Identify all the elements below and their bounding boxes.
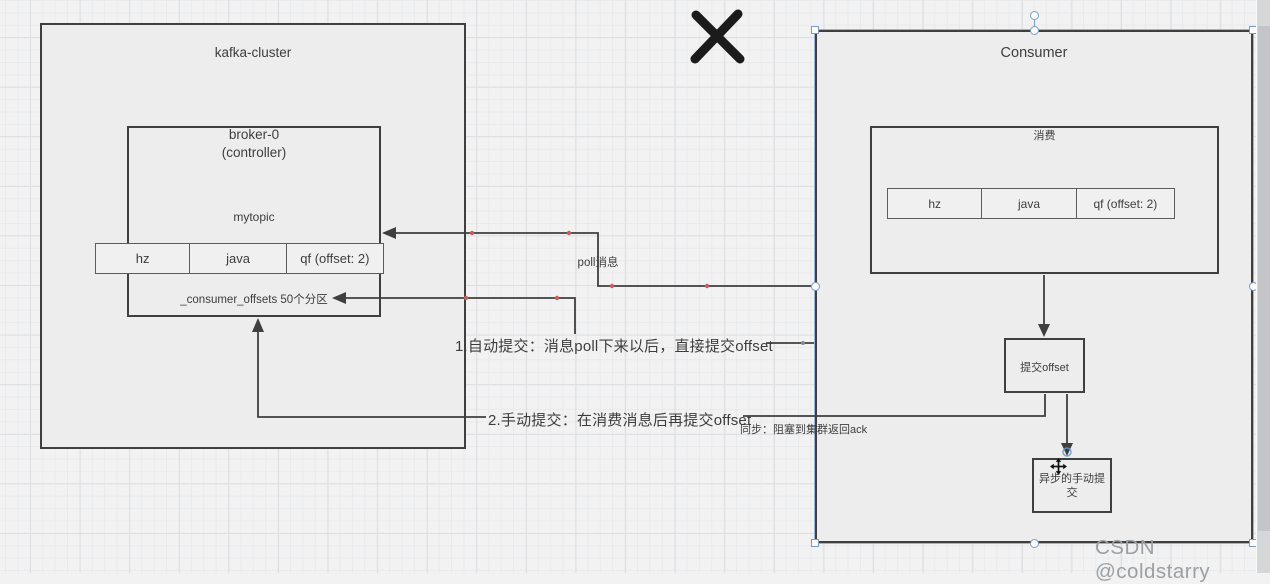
rotation-handle[interactable] (1030, 11, 1039, 20)
waypoint-dot (610, 284, 614, 288)
kafka-partition-table[interactable]: hz java qf (offset: 2) (95, 243, 384, 274)
consumer-partition-cell[interactable]: hz (888, 189, 982, 218)
endpoint-dot (801, 341, 805, 345)
commit-offset-label: 提交offset (1004, 359, 1085, 375)
watermark: CSDN @coldstarry (1095, 536, 1270, 584)
vertical-scrollbar[interactable] (1256, 0, 1270, 573)
vertical-scrollbar-thumb[interactable] (1258, 26, 1270, 531)
broker-name: broker-0 (127, 127, 381, 142)
selection-handle-bottom-middle[interactable] (1030, 539, 1039, 548)
waypoint-dot (555, 296, 559, 300)
consumer-partition-table[interactable]: hz java qf (offset: 2) (887, 188, 1175, 219)
consume-label: 消费 (870, 127, 1219, 143)
selection-handle-bottom-left[interactable] (811, 539, 819, 547)
waypoint-dot (567, 231, 571, 235)
waypoint-dot (705, 284, 709, 288)
selection-handle-middle-left[interactable] (811, 282, 820, 291)
consumer-partition-cell[interactable]: java (982, 189, 1076, 218)
diagram-canvas[interactable]: kafka-cluster Consumer broker-0 (control… (0, 0, 1270, 573)
auto-commit-annotation[interactable]: 1.自动提交：消息poll下来以后，直接提交offset (455, 335, 773, 356)
consumer-partition-cell[interactable]: qf (offset: 2) (1077, 189, 1174, 218)
kafka-cluster-title: kafka-cluster (40, 45, 466, 60)
consumer-title: Consumer (815, 45, 1253, 61)
topic-label: mytopic (127, 210, 381, 224)
sync-ack-annotation[interactable]: 同步：阻塞到集群返回ack (740, 421, 867, 437)
manual-commit-annotation[interactable]: 2.手动提交：在消费消息后再提交offset (488, 409, 751, 430)
waypoint-dot (470, 231, 474, 235)
broker-role: (controller) (127, 145, 381, 160)
poll-message-label[interactable]: poll消息 (558, 254, 638, 270)
kafka-partition-cell[interactable]: hz (96, 244, 190, 273)
consumer-offsets-label: _consumer_offsets 50个分区 (127, 291, 381, 307)
move-cursor-icon (1050, 458, 1067, 475)
selection-handle-top-left[interactable] (811, 26, 819, 34)
kafka-partition-cell[interactable]: qf (offset: 2) (287, 244, 383, 273)
kafka-partition-cell[interactable]: java (190, 244, 286, 273)
async-manual-commit-label: 异步的手动提交 (1037, 472, 1107, 500)
selection-handle-top-middle[interactable] (1030, 26, 1039, 35)
x-mark[interactable] (688, 8, 746, 66)
